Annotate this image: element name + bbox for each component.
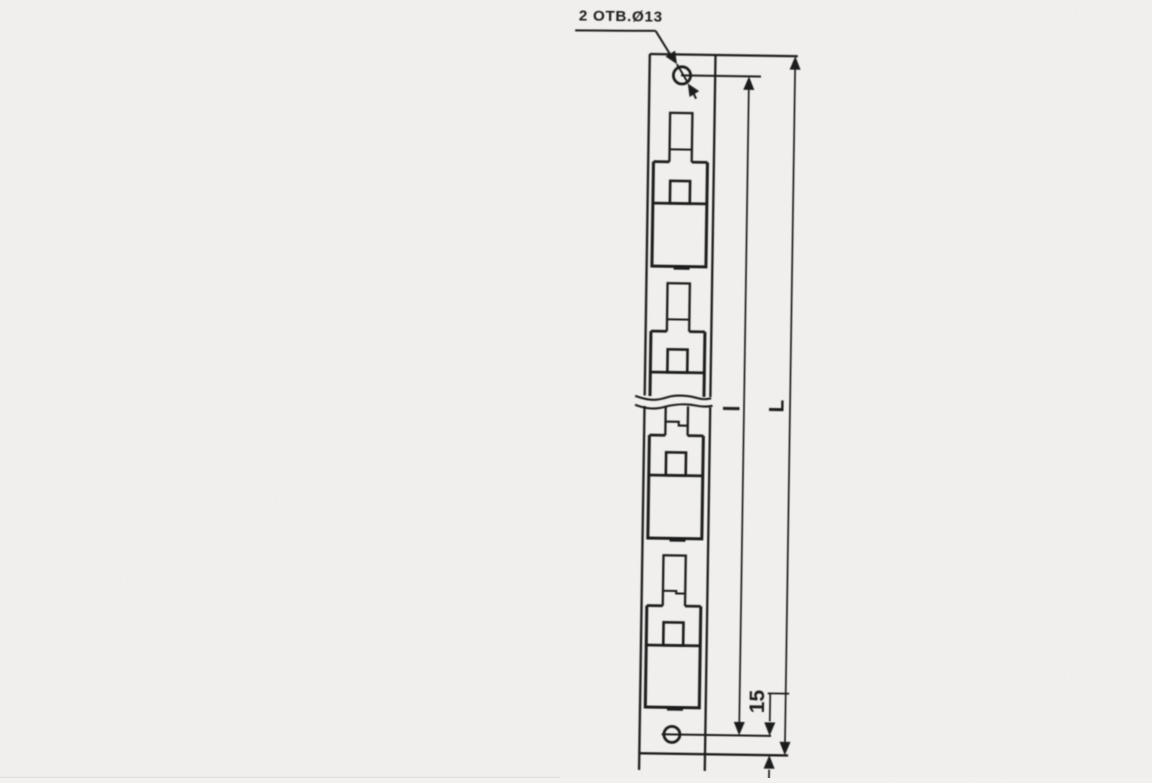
svg-text:L: L bbox=[765, 399, 788, 412]
svg-text:2 ОТВ.Ø13: 2 ОТВ.Ø13 bbox=[579, 7, 663, 25]
svg-text:15: 15 bbox=[746, 689, 769, 713]
